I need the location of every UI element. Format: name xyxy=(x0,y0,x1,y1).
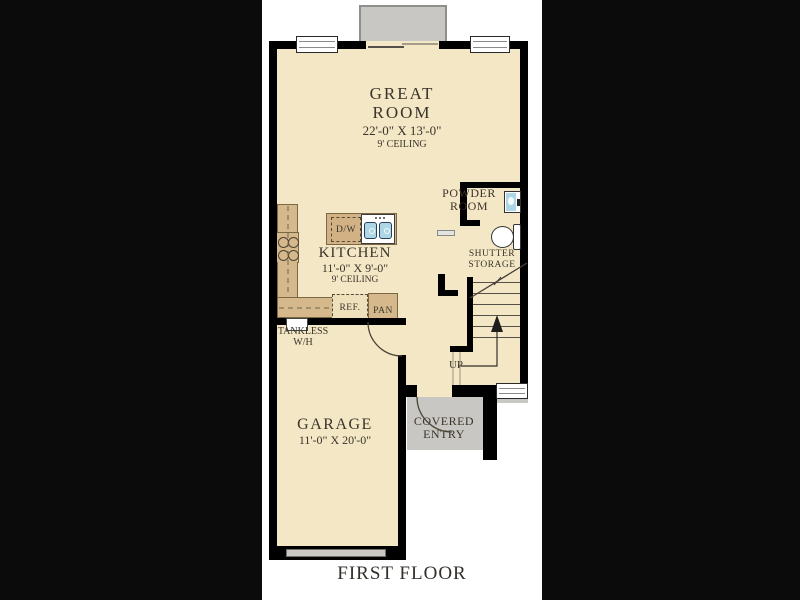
wall xyxy=(398,355,406,560)
window-pane xyxy=(473,41,507,48)
room-name: ROOM xyxy=(337,103,467,122)
basin-bowl xyxy=(508,197,514,205)
faucet-icon xyxy=(517,199,520,206)
faucet-icon xyxy=(375,217,377,219)
stair-tread xyxy=(473,293,520,294)
pantry-label: PAN xyxy=(368,306,398,317)
room-name: POWDER xyxy=(433,187,505,200)
patio-slab xyxy=(359,5,447,43)
room-name: KITCHEN xyxy=(293,245,417,262)
up-label: UP xyxy=(444,359,468,371)
great-room-label-block: GREAT ROOM 22'-0" X 13'-0" 9' CEILING xyxy=(337,84,467,150)
dishwasher-label: D/W xyxy=(336,225,356,235)
kitchen-label-block: KITCHEN 11'-0" X 9'-0" 9' CEILING xyxy=(293,245,417,286)
stair-tread xyxy=(473,326,520,327)
plan-title: FIRST FLOOR xyxy=(262,563,542,584)
window xyxy=(470,36,510,53)
garage-label-block: GARAGE 11'-0" X 20'-0" xyxy=(275,416,395,447)
room-name: SHUTTER xyxy=(456,249,528,260)
wall xyxy=(483,385,497,460)
fixture-label: TANKLESS xyxy=(266,326,340,337)
wall xyxy=(269,41,277,560)
room-name: STORAGE xyxy=(456,260,528,271)
wall xyxy=(438,290,458,296)
room-name: GREAT xyxy=(337,84,467,103)
toilet-bowl xyxy=(491,226,514,248)
tankless-label-block: TANKLESS W/H xyxy=(266,326,340,348)
faucet-icon xyxy=(379,217,381,219)
window-pane xyxy=(499,388,525,394)
room-name: ENTRY xyxy=(404,428,484,441)
wall xyxy=(460,220,480,226)
refrigerator-label: REF. xyxy=(339,303,360,313)
sliding-door-panel xyxy=(402,43,438,45)
covered-entry-label-block: COVERED ENTRY xyxy=(404,415,484,442)
faucet-icon xyxy=(383,217,385,219)
sink-basin xyxy=(364,222,377,239)
drain-icon xyxy=(369,228,375,234)
vanity-sink xyxy=(504,191,521,213)
stair-tread xyxy=(473,282,520,283)
room-dimensions: 11'-0" X 20'-0" xyxy=(275,434,395,447)
garage-door xyxy=(286,549,386,557)
sliding-door-panel xyxy=(368,46,404,48)
stair-tread xyxy=(473,337,520,338)
shutter-storage-label-block: SHUTTER STORAGE xyxy=(456,249,528,270)
room-dimensions: 22'-0" X 13'-0" xyxy=(337,124,467,139)
wall-shelf xyxy=(437,230,455,236)
drain-icon xyxy=(384,228,390,234)
kitchen-counter-bottom xyxy=(277,297,333,318)
sink-basin xyxy=(379,222,392,239)
fixture-label: W/H xyxy=(266,337,340,348)
window xyxy=(496,383,528,399)
window xyxy=(296,36,338,53)
stair-tread xyxy=(473,304,520,305)
stair-wall xyxy=(450,346,473,352)
refrigerator-space: REF. xyxy=(332,294,368,321)
room-name: COVERED xyxy=(404,415,484,428)
stair-tread xyxy=(473,315,520,316)
floor-plan-page: PAN REF. D/W xyxy=(0,0,800,600)
front-door-opening xyxy=(417,385,452,397)
kitchen-counter-upper xyxy=(277,204,298,233)
room-dimensions: 11'-0" X 9'-0" xyxy=(293,262,417,275)
ceiling-height: 9' CEILING xyxy=(293,275,417,286)
ceiling-height: 9' CEILING xyxy=(337,139,467,150)
dishwasher-space: D/W xyxy=(331,217,361,242)
powder-room-label-block: POWDER ROOM xyxy=(433,187,505,214)
room-name: GARAGE xyxy=(275,416,395,434)
garage-door-opening-interior xyxy=(398,325,406,355)
wall xyxy=(520,41,528,397)
toilet-tank xyxy=(513,224,521,250)
kitchen-sink xyxy=(361,214,395,244)
room-name: ROOM xyxy=(433,200,505,213)
window-pane xyxy=(299,41,335,48)
